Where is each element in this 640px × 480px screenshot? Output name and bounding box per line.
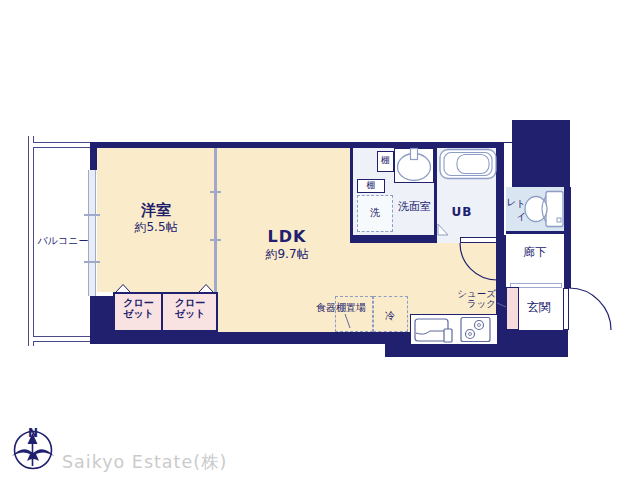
floor-plan: バルコニー クロー ゼット クロー ゼット 棚 棚 洗 洗面室 UB bbox=[0, 0, 640, 480]
company-watermark: Saikyo Estate(株) bbox=[62, 450, 227, 474]
closet-left-label: クロー ゼット bbox=[116, 297, 161, 319]
toilet-label: トイレ bbox=[507, 192, 526, 228]
wall-right bbox=[564, 187, 571, 288]
window-tick-2 bbox=[84, 261, 100, 263]
shoe-rack-label: シューズ ラック bbox=[436, 289, 496, 310]
washer-label: 洗 bbox=[357, 207, 393, 218]
shoe-rack bbox=[506, 287, 519, 330]
ldk-door-leaf bbox=[460, 237, 497, 243]
balcony-bottom-line bbox=[33, 336, 90, 342]
wall-left-upper bbox=[90, 142, 97, 170]
fridge-label: 冷 bbox=[380, 310, 400, 321]
entrance-label: 玄関 bbox=[518, 301, 560, 314]
shelf-side-label: 棚 bbox=[357, 181, 385, 191]
shelf-top-label: 棚 bbox=[377, 156, 394, 166]
partition-tick-2 bbox=[210, 239, 221, 241]
balcony-window bbox=[88, 170, 96, 296]
wall-top-right-block bbox=[512, 120, 570, 187]
window-tick-1 bbox=[84, 214, 100, 216]
dish-shelf-label: 食器棚置場 bbox=[316, 302, 372, 313]
balcony-label: バルコニー bbox=[36, 235, 90, 246]
partition-western-ldk bbox=[214, 148, 217, 292]
balcony-railing bbox=[28, 136, 34, 346]
unit-bath-floor bbox=[437, 148, 496, 243]
wall-left-corner bbox=[90, 296, 113, 336]
pipe-space bbox=[504, 143, 512, 187]
closet-right-label: クロー ゼット bbox=[166, 297, 214, 319]
wall-ub-right bbox=[496, 143, 504, 243]
balcony-top-line bbox=[33, 142, 90, 148]
kitchen-counter bbox=[410, 314, 498, 345]
entrance-door-arc bbox=[569, 288, 611, 330]
unit-bath-label: UB bbox=[447, 206, 477, 219]
western-room-label: 洋室 約5.5帖 bbox=[126, 202, 186, 234]
vanity-box bbox=[394, 148, 434, 183]
compass-north-label: N bbox=[25, 427, 41, 440]
ldk-label: LDK 約9.7帖 bbox=[257, 228, 317, 261]
washroom-label: 洗面室 bbox=[392, 201, 437, 213]
wall-bottom bbox=[90, 332, 385, 344]
entrance-door-leaf bbox=[563, 288, 569, 330]
partition-tick-1 bbox=[210, 191, 221, 193]
corridor-label: 廊下 bbox=[510, 246, 560, 259]
